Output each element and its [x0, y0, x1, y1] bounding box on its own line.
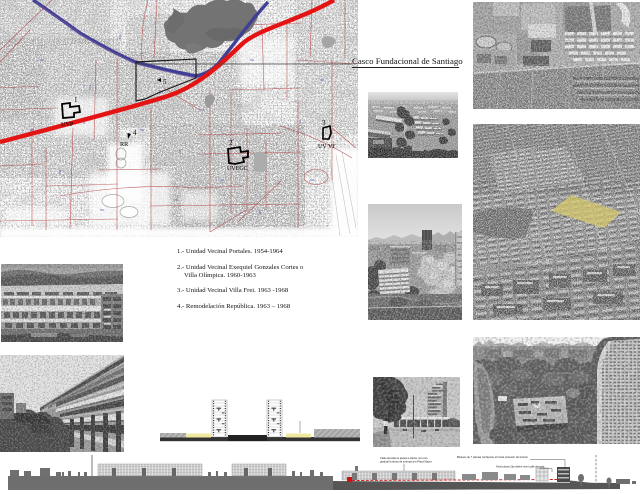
svg-text:4: 4	[133, 129, 137, 137]
svg-text:gradual la altura de entrega a: gradual la altura de entrega a la Plaza …	[380, 459, 432, 463]
svg-text:1: 1	[74, 96, 78, 104]
svg-text:UVEGC: UVEGC	[227, 166, 248, 172]
svg-text:3: 3	[322, 119, 326, 127]
svg-text:5: 5	[163, 78, 167, 86]
svg-text:Nivel planta 2da define nivel: Nivel planta 2da define nivel calle elev…	[496, 465, 545, 469]
svg-text:RR: RR	[120, 141, 129, 148]
svg-text:2: 2	[229, 139, 233, 147]
svg-text:Bloques de 7 plantas configura: Bloques de 7 plantas configuran el borde…	[457, 455, 528, 459]
svg-text:UV VF: UV VF	[318, 144, 336, 150]
svg-text:Calle elevada se ajusta a plan: Calle elevada se ajusta a planta: 1er pi…	[380, 456, 428, 460]
svg-text:UVP: UVP	[61, 121, 74, 128]
